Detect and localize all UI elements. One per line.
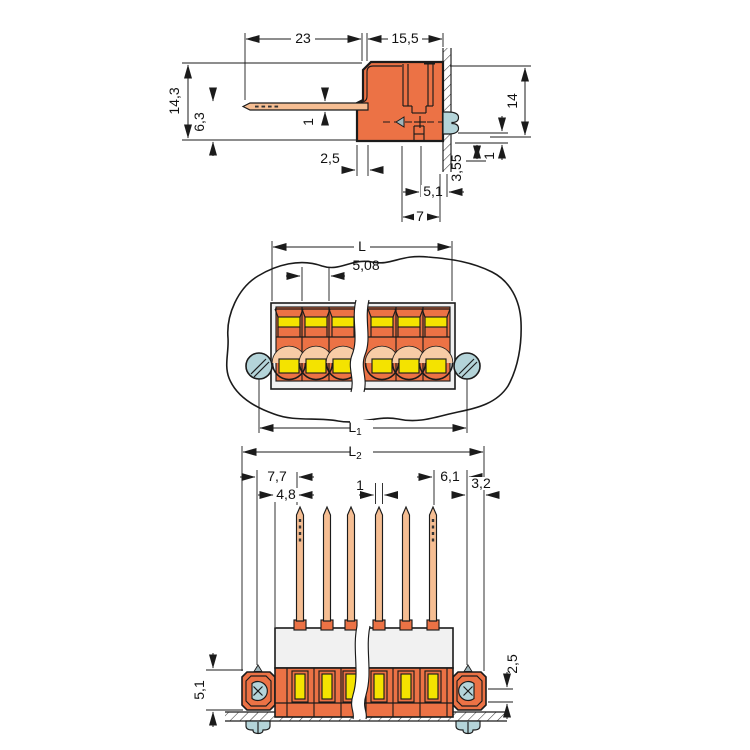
dim-recess-depth: 7	[416, 208, 424, 224]
screw-head-bottom-left	[246, 721, 270, 734]
dim-pin-width: 1	[356, 477, 364, 493]
dim-panel-depth: 3,55	[448, 154, 464, 181]
pin-serration	[299, 519, 301, 522]
pin-serration	[432, 519, 434, 522]
marker-triangle-left-icon	[254, 665, 262, 672]
dim-panel-clearance: 1	[481, 152, 497, 160]
dim-pin-height: 6,3	[191, 112, 207, 132]
contact-square	[399, 359, 419, 373]
screw-head-bottom-right	[456, 721, 480, 734]
solder-pin	[324, 507, 331, 621]
flange-screw-left	[252, 682, 267, 701]
contact-window	[332, 317, 354, 327]
pin-serration	[299, 532, 301, 535]
fixing-flange-right	[453, 672, 486, 710]
solder-pin	[348, 507, 355, 621]
contact-square	[426, 359, 446, 373]
dim-step: 2,5	[320, 150, 340, 166]
side-view: 23 15,5 14,3 6,3 1 2,5 14	[166, 30, 531, 224]
contact-square	[306, 359, 326, 373]
slot-contact	[322, 674, 332, 699]
dim-screw-to-edge: 3,2	[471, 475, 491, 491]
dim-pitch: 5,08	[352, 257, 379, 273]
marker-triangle-right-icon	[464, 665, 472, 672]
fixing-screw-side	[443, 112, 459, 134]
dim-length-L: L	[358, 238, 366, 254]
dim-total-height: 14,3	[166, 87, 182, 114]
connector-housing-side	[357, 62, 443, 141]
dim-pin-to-screw: 6,1	[440, 468, 460, 484]
slot-contact	[374, 674, 384, 699]
pin-serration	[432, 532, 434, 535]
dim-pin-length: 23	[295, 30, 311, 46]
solder-pin	[297, 507, 304, 621]
dim-housing-depth: 15,5	[391, 30, 418, 46]
contact-square	[372, 359, 392, 373]
panel-screw-right	[454, 353, 480, 379]
contact-window	[278, 317, 300, 327]
solder-pins	[294, 507, 439, 630]
top-notch	[424, 61, 435, 65]
side-view-dimensions: 23 15,5 14,3 6,3 1 2,5 14	[166, 30, 531, 224]
pin-serration	[299, 526, 301, 529]
contact-square	[279, 359, 299, 373]
slot-contact	[428, 674, 438, 699]
fixing-flange-left	[242, 672, 275, 710]
solder-pin	[403, 507, 410, 621]
drawing-svg: 23 15,5 14,3 6,3 1 2,5 14	[0, 0, 750, 750]
contact-window	[398, 317, 420, 327]
contact-window	[371, 317, 393, 327]
dim-pin-thickness: 1	[300, 118, 316, 126]
dim-body-to-pin: 4,8	[276, 486, 296, 502]
pin-side-view: 7,7 6,1 4,8 1 3,2 5,1 2,5	[191, 468, 520, 734]
technical-drawing-canvas: 23 15,5 14,3 6,3 1 2,5 14	[0, 0, 750, 750]
pin-serration	[432, 539, 434, 542]
contact-window	[425, 317, 447, 327]
slot-contact	[401, 674, 411, 699]
dim-flange-offset: 2,5	[504, 654, 520, 674]
pin-serration	[432, 526, 434, 529]
solder-pin	[430, 507, 437, 621]
dim-housing-height: 14	[504, 93, 520, 109]
solder-pin	[376, 507, 383, 621]
dim-edge-to-pin: 7,7	[267, 468, 287, 484]
front-view: L 5,08 L1 L2	[227, 238, 521, 671]
contact-window	[305, 317, 327, 327]
mounting-panel-side	[443, 48, 451, 172]
panel-screw-left	[246, 353, 272, 379]
pin-serration	[299, 539, 301, 542]
dim-flange-height: 5,1	[191, 680, 207, 700]
flange-screw-right	[459, 682, 474, 701]
slot-contact	[295, 674, 305, 699]
